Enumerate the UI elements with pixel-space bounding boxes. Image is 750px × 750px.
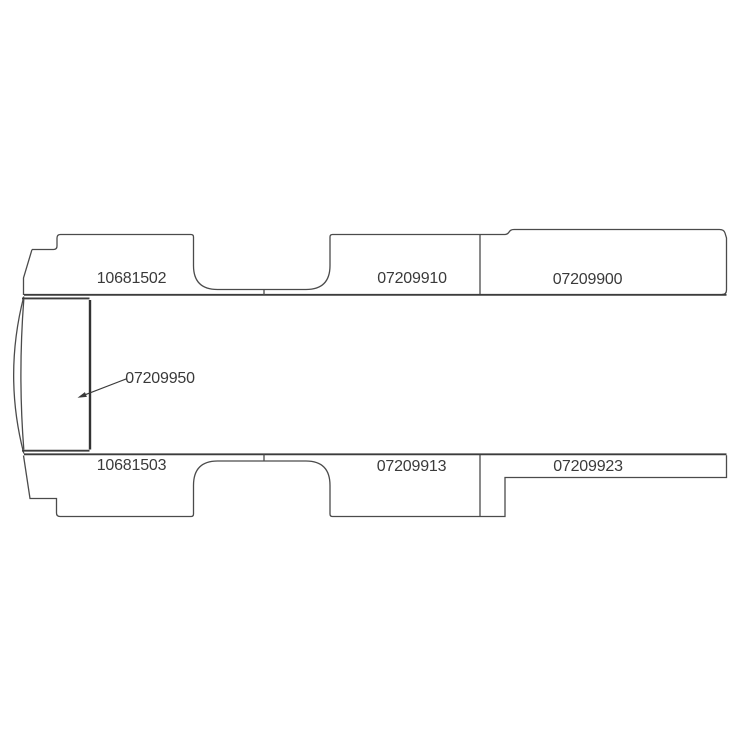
van-floor-diagram: 10681502 07209910 07209900 07209950 1068… [0, 0, 750, 750]
part-label-07209910: 07209910 [377, 271, 447, 287]
front-panel-seam-lines [22, 298, 90, 450]
part-label-10681502: 10681502 [97, 271, 167, 287]
front-panel-left-edge [21, 300, 24, 450]
part-label-07209900: 07209900 [553, 272, 623, 288]
part-label-07209950: 07209950 [125, 371, 195, 387]
left-body-outline [14, 250, 32, 454]
floor-outline-drawing [0, 0, 750, 750]
part-label-07209923: 07209923 [553, 459, 623, 475]
part-label-07209913: 07209913 [377, 459, 447, 475]
panel-divider-lines [264, 235, 480, 517]
leader-arrowhead-icon [78, 392, 87, 398]
part-label-10681503: 10681503 [97, 458, 167, 474]
